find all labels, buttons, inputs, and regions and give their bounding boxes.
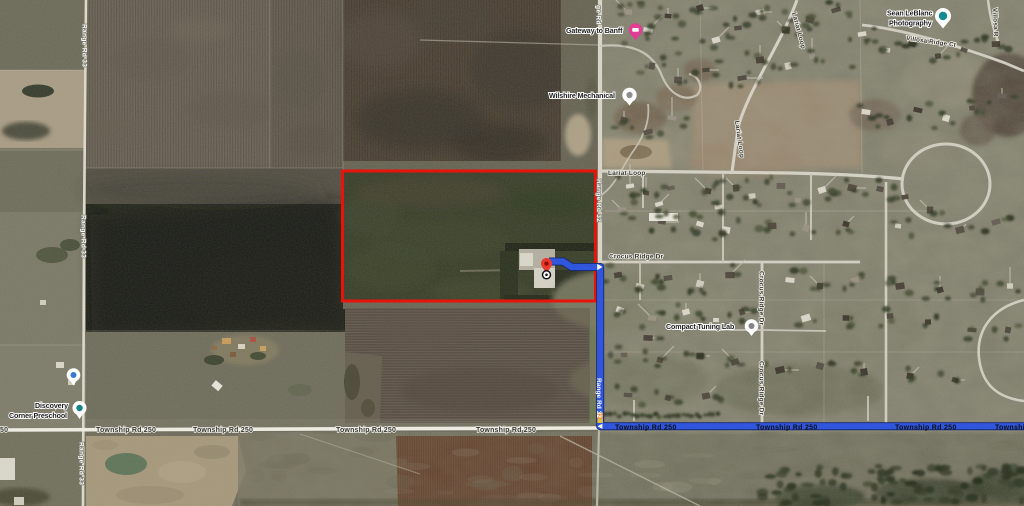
svg-text:50: 50 — [0, 427, 8, 434]
svg-text:Crocus Ridge Dr: Crocus Ridge Dr — [758, 271, 765, 326]
svg-text:Township Rd 250: Township Rd 250 — [96, 427, 156, 434]
svg-text:Compact Tuning Lab: Compact Tuning Lab — [666, 323, 735, 331]
svg-text:Township Rd 250: Township Rd 250 — [615, 424, 677, 431]
svg-text:Range Rd 32: Range Rd 32 — [595, 179, 602, 222]
svg-text:Lariat Loop: Lariat Loop — [608, 170, 646, 177]
svg-text:Range Rd 33: Range Rd 33 — [80, 215, 87, 258]
svg-text:Discovery: Discovery — [35, 402, 68, 410]
svg-text:Township Rd 250: Township Rd 250 — [336, 427, 396, 434]
svg-text:Wilshire Mechanical: Wilshire Mechanical — [549, 92, 615, 100]
svg-text:Corner Preschool: Corner Preschool — [9, 412, 67, 420]
svg-text:Range Rd 32: Range Rd 32 — [595, 378, 602, 418]
svg-text:Villosa R: Villosa R — [991, 8, 999, 37]
svg-text:Township Rd 250: Township Rd 250 — [476, 427, 536, 434]
svg-text:Range Rd 33: Range Rd 33 — [81, 24, 88, 67]
svg-text:Photography: Photography — [889, 20, 932, 28]
svg-text:ge Rd: ge Rd — [595, 5, 602, 25]
svg-text:Townshi: Townshi — [995, 424, 1024, 431]
svg-text:Township Rd 250: Township Rd 250 — [193, 427, 253, 434]
svg-text:Township Rd 250: Township Rd 250 — [895, 424, 957, 431]
svg-text:Gateway to Banff: Gateway to Banff — [566, 27, 623, 35]
svg-text:Township Rd 250: Township Rd 250 — [756, 424, 818, 431]
svg-text:Crocus Ridge Dr: Crocus Ridge Dr — [758, 361, 765, 416]
svg-text:Sean LeBlanc: Sean LeBlanc — [887, 10, 932, 18]
svg-text:Crocus Ridge Dr: Crocus Ridge Dr — [609, 254, 664, 261]
svg-text:Range Rd 33: Range Rd 33 — [78, 442, 85, 485]
